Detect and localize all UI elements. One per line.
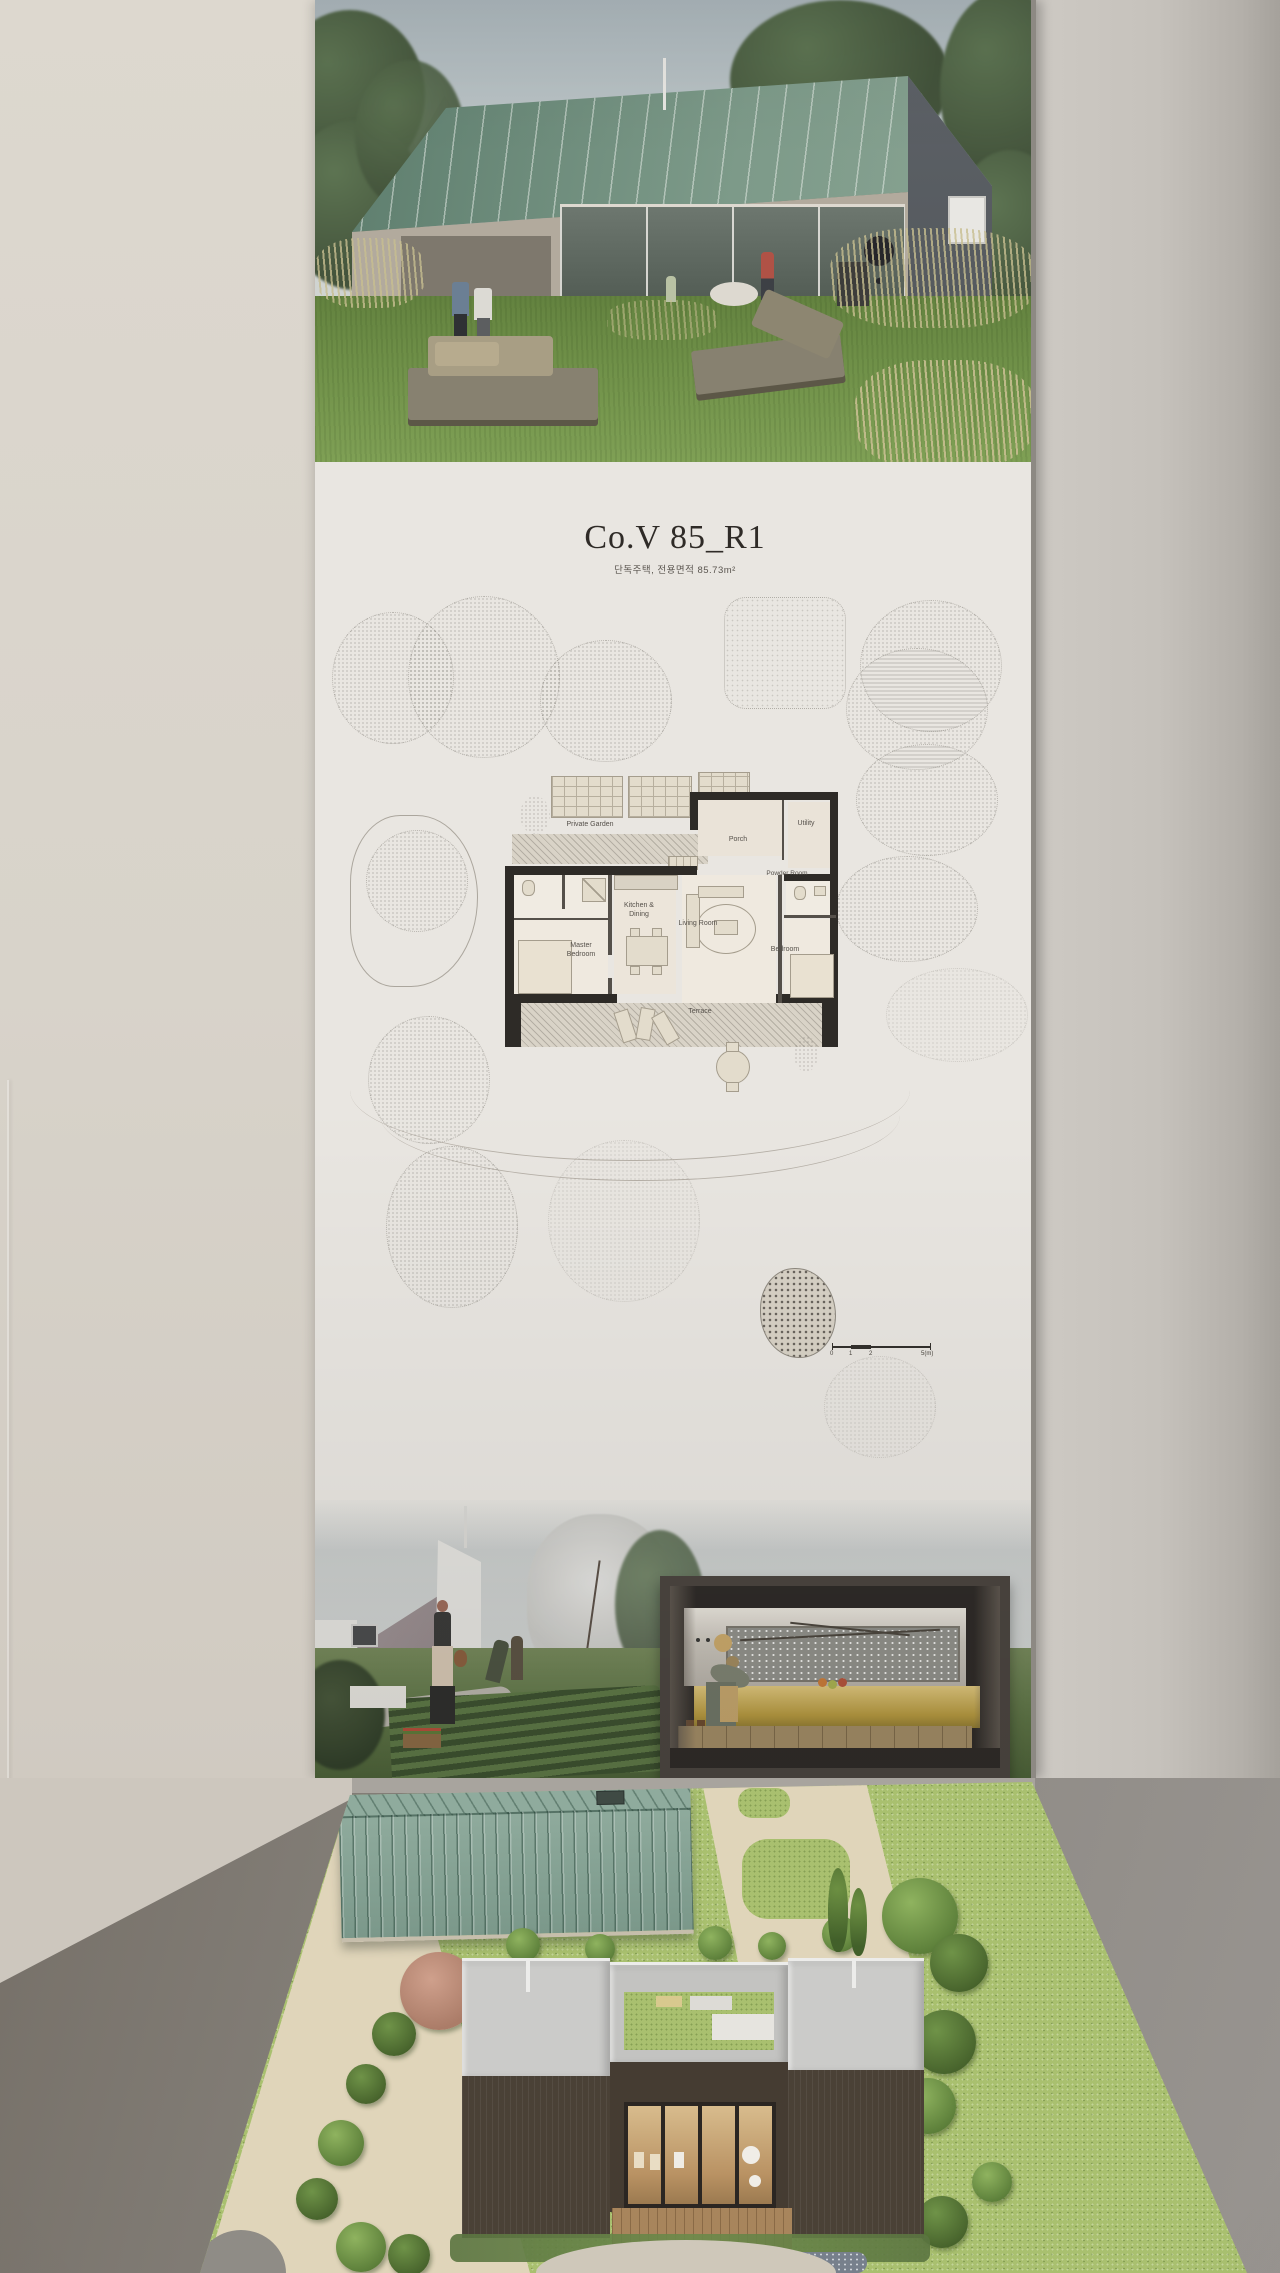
model-bush — [318, 2120, 364, 2166]
plan-tree — [886, 968, 1028, 1062]
wall-base-wedge — [0, 1778, 352, 1983]
plan-tree — [836, 856, 978, 962]
plan-tree — [856, 744, 998, 856]
porch-floor — [698, 800, 782, 856]
model-conifer — [828, 1868, 848, 1952]
model-right-wing-facade — [788, 2070, 924, 2238]
plan-hedge — [724, 597, 846, 709]
cottage-flue — [464, 1506, 467, 1548]
gallery-wall-right — [1035, 0, 1280, 1790]
scale-tick-1: 1 — [849, 1351, 852, 1357]
bedroom-label: Bedroom — [757, 946, 813, 955]
powder-sink — [814, 886, 826, 896]
model-roof-piece — [338, 1786, 694, 1943]
grass-tuft — [607, 300, 717, 340]
model-left-wing-room — [462, 1958, 610, 2079]
outdoor-table — [716, 1050, 750, 1084]
utility-floor — [788, 802, 830, 868]
pampas-grass — [830, 228, 1035, 328]
pampas-grass — [315, 238, 425, 308]
plan-tree — [540, 640, 672, 762]
mini-table-round — [742, 2146, 760, 2164]
plan-tree — [366, 830, 468, 932]
wall-hook-dots — [696, 1638, 700, 1642]
poster-right-shadow — [1031, 0, 1036, 1778]
outdoor-chair — [726, 1082, 739, 1092]
woman-head — [437, 1600, 448, 1612]
model-bush — [336, 2222, 386, 2272]
powder-room-label: Powder Room — [747, 870, 827, 878]
scale-tick-2: 2 — [869, 1351, 872, 1357]
poster-title: Co.V 85_R1 — [315, 519, 1035, 557]
mini-chairs — [634, 2152, 644, 2168]
utility-label: Utility — [778, 820, 834, 829]
plan-tree — [824, 1356, 936, 1458]
model-table — [0, 1778, 1280, 2273]
porch-label: Porch — [698, 836, 778, 845]
dining-chair — [652, 966, 662, 975]
private-garden-label: Private Garden — [535, 821, 645, 830]
glass-pane — [628, 2106, 661, 2204]
glass-pane — [702, 2106, 735, 2204]
garden-rendering — [315, 1500, 1035, 1778]
person-blue-shirt — [452, 282, 469, 316]
wall-thin — [608, 978, 612, 994]
living-room-label: Living Room — [668, 920, 728, 929]
vegetable-crate — [403, 1728, 441, 1748]
model-roof-ribs — [339, 1808, 694, 1939]
scale-tick-5m: 5(m) — [921, 1351, 933, 1357]
wall-thin — [778, 875, 782, 1003]
gallery-wall-left — [0, 0, 315, 1790]
model-bush — [972, 2162, 1012, 2202]
wall — [690, 792, 838, 800]
plan-stepping-stones — [760, 1268, 836, 1358]
exhibition-poster: Co.V 85_R1 단독주택, 전용면적 85.73m² — [315, 0, 1035, 1778]
woman-skirt — [430, 1686, 455, 1724]
exhibit-photo: Co.V 85_R1 단독주택, 전용면적 85.73m² — [0, 0, 1280, 2273]
wall-corner-edge — [7, 1080, 9, 1822]
plan-scale-bar: 0 1 2 5(m) — [826, 1340, 942, 1358]
model-wall-stub — [526, 1958, 530, 1992]
architectural-model-base — [200, 1782, 1250, 2273]
site-plan-drawing: 0 1 2 5(m) Private Garden — [315, 580, 1035, 1480]
kitchen-counter — [614, 875, 678, 890]
wall-thin — [784, 915, 836, 918]
interior-inset-frame — [660, 1576, 1010, 1778]
plan-tree — [408, 596, 560, 758]
inset-left-wall — [670, 1586, 696, 1748]
powder-toilet — [794, 886, 806, 900]
garden-bed-grid — [551, 776, 623, 818]
terrace-label: Terrace — [668, 1008, 732, 1017]
shower — [582, 878, 606, 902]
model-right-wing-room — [788, 1958, 924, 2073]
garden-bed-grid — [628, 776, 692, 818]
white-planter — [350, 1686, 406, 1708]
woman-bodice — [434, 1612, 451, 1650]
straw-hat — [714, 1634, 732, 1652]
model-left-wing-facade — [462, 2076, 610, 2238]
toddler-figure — [666, 276, 676, 302]
dining-chair — [652, 928, 662, 937]
model-base-edge-right — [1136, 1777, 1280, 2273]
model-wall-stub — [852, 1958, 856, 1988]
model-glass-doors — [624, 2102, 776, 2208]
wall — [690, 792, 698, 830]
wall-thin — [782, 800, 784, 860]
model-yellow-card — [656, 1996, 682, 2007]
model-house — [462, 1952, 924, 2252]
parking-grass-island — [738, 1788, 790, 1818]
glass-pane — [665, 2106, 698, 2204]
gardener-figure — [511, 1636, 523, 1680]
model-bush — [388, 2234, 430, 2273]
person-white-shirt — [474, 288, 492, 320]
model-conifer — [850, 1888, 867, 1956]
exterior-rendering — [315, 0, 1035, 462]
model-roof-vent — [596, 1790, 624, 1805]
model-bush — [372, 2012, 416, 2056]
wall-thin — [562, 875, 565, 909]
model-counter-upper — [690, 1996, 732, 2010]
dining-chair — [630, 966, 640, 975]
dining-chair — [630, 928, 640, 937]
inset-right-wall — [974, 1586, 1000, 1748]
wall — [505, 994, 617, 1003]
grass-tuft-foreground — [855, 360, 1035, 462]
daybed-pillow — [435, 342, 499, 366]
master-bedroom-label: Master Bedroom — [558, 942, 604, 960]
kitchen-dining-label: Kitchen & Dining — [616, 902, 662, 920]
woman-apron — [432, 1646, 453, 1690]
model-bush — [346, 2064, 386, 2104]
wall — [822, 1003, 838, 1047]
bath-toilet — [522, 880, 535, 896]
model-bush — [296, 2178, 338, 2220]
dining-table — [626, 936, 668, 966]
wall — [505, 1003, 521, 1047]
wall-thin — [514, 918, 608, 920]
roof-vent-pipe — [663, 58, 666, 110]
wall — [830, 792, 838, 882]
model-kitchen-counter — [712, 2014, 774, 2040]
inset-person-apron — [720, 1686, 738, 1722]
wall-thin — [608, 875, 612, 955]
inset-floor — [678, 1726, 972, 1748]
model-tree — [930, 1934, 988, 1992]
sofa-side — [698, 886, 744, 898]
water-jug — [454, 1650, 467, 1667]
floor-plan: Private Garden Porch Utility — [500, 770, 840, 1120]
wall — [505, 866, 697, 875]
inset-produce — [818, 1678, 827, 1687]
kitchen-floor — [614, 875, 676, 994]
scale-tick-0: 0 — [830, 1351, 833, 1357]
plan-planter-sketch — [794, 1036, 818, 1072]
bean-bag — [710, 282, 758, 306]
cottage-window — [351, 1624, 378, 1647]
poster-subtitle: 단독주택, 전용면적 85.73m² — [315, 562, 1035, 576]
outdoor-chair — [726, 1042, 739, 1052]
wall — [505, 866, 514, 1004]
bedroom-bed — [790, 954, 834, 998]
